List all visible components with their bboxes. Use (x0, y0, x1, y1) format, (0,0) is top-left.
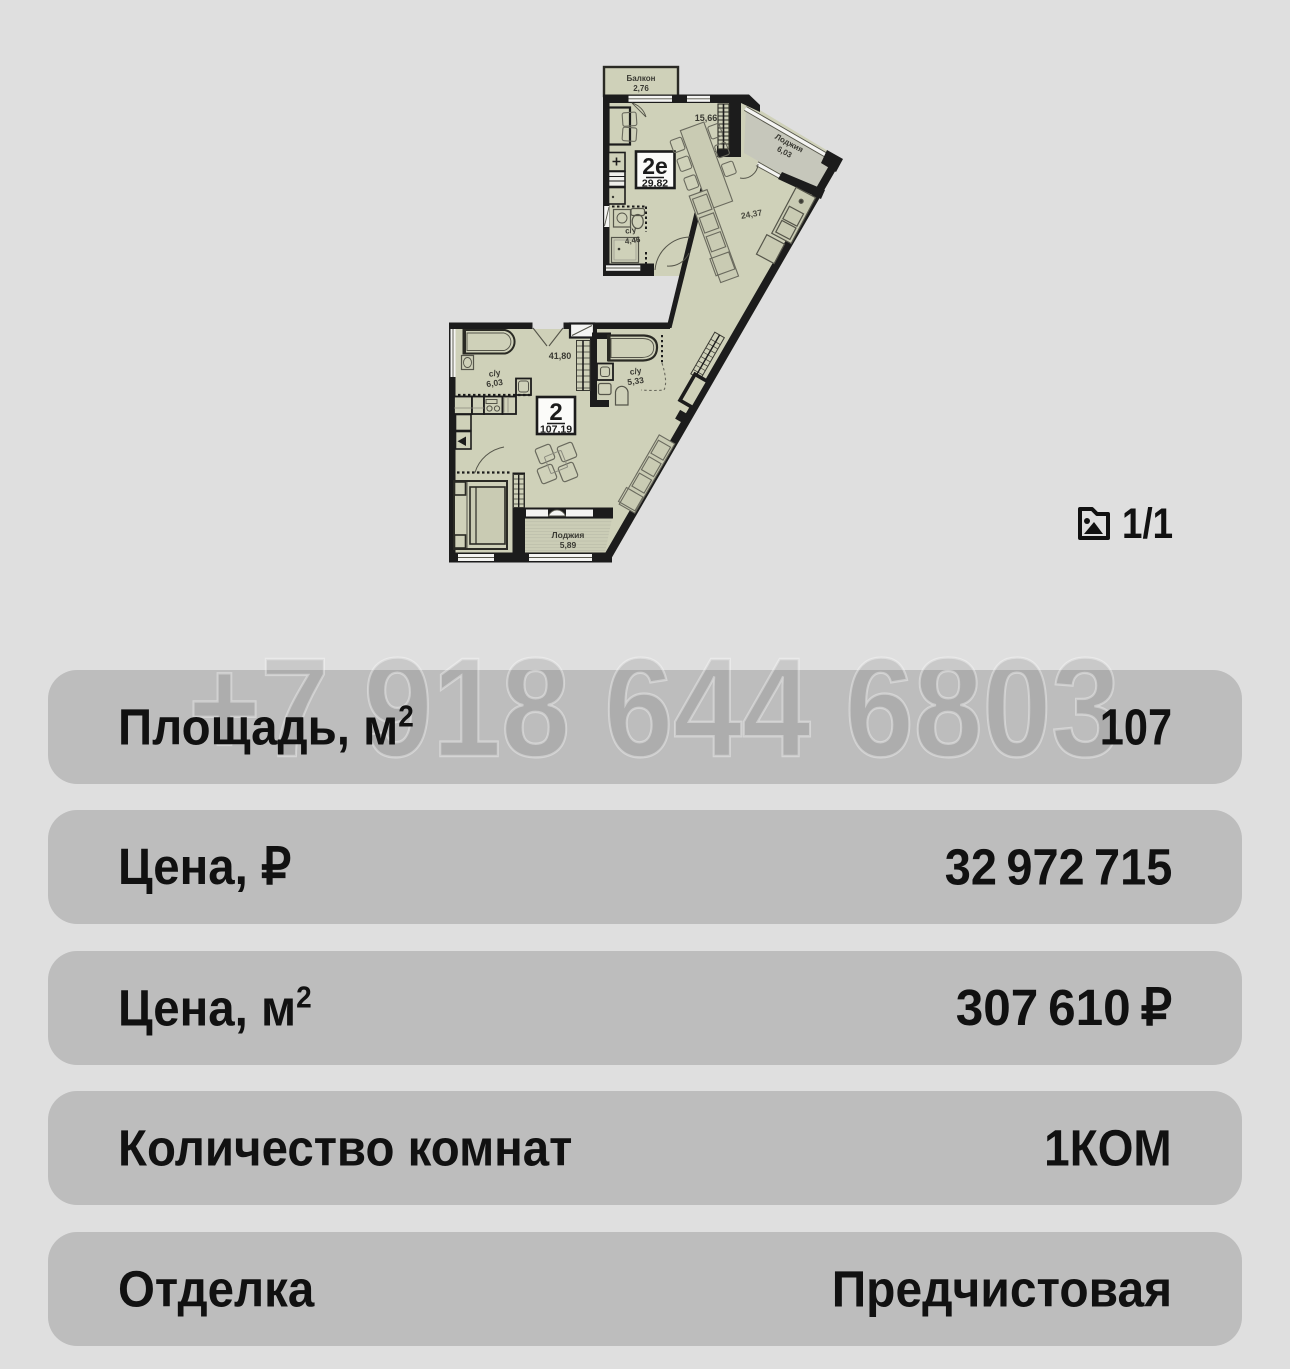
svg-text:Балкон: Балкон (627, 74, 656, 83)
svg-text:2е: 2е (642, 153, 668, 179)
svg-text:41,80: 41,80 (549, 351, 572, 361)
svg-text:2,76: 2,76 (633, 84, 649, 93)
svg-text:5,89: 5,89 (560, 540, 577, 550)
svg-text:Лоджия: Лоджия (552, 530, 585, 540)
svg-text:с/у: с/у (625, 225, 638, 236)
svg-text:2: 2 (549, 399, 562, 426)
svg-text:107,19: 107,19 (540, 424, 572, 436)
svg-text:29,82: 29,82 (642, 178, 668, 190)
svg-text:15,66: 15,66 (695, 113, 718, 123)
